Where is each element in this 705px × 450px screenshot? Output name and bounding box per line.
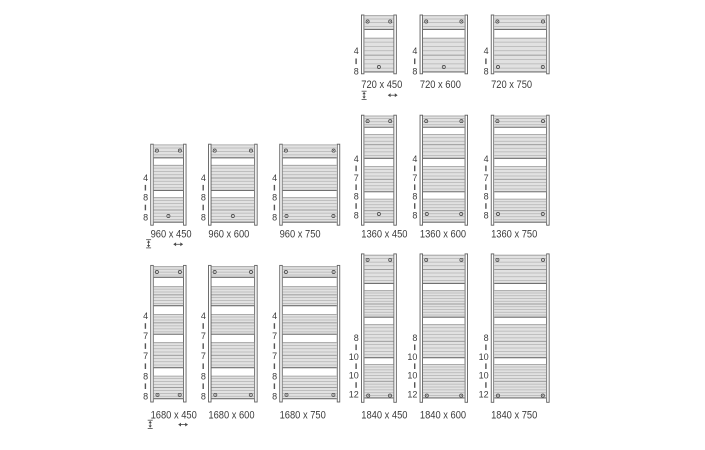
svg-text:7: 7 xyxy=(201,331,206,341)
svg-text:10: 10 xyxy=(407,352,417,362)
svg-text:720 x 600: 720 x 600 xyxy=(420,79,461,91)
svg-text:720 x 750: 720 x 750 xyxy=(491,79,532,91)
svg-text:8: 8 xyxy=(412,192,417,202)
svg-text:8: 8 xyxy=(412,333,417,343)
svg-text:4: 4 xyxy=(484,154,489,164)
svg-text:7: 7 xyxy=(484,173,489,183)
svg-text:4: 4 xyxy=(201,311,206,321)
svg-text:8: 8 xyxy=(272,391,277,401)
svg-text:8: 8 xyxy=(201,371,206,381)
svg-text:7: 7 xyxy=(354,173,359,183)
svg-text:8: 8 xyxy=(412,211,417,221)
svg-text:4: 4 xyxy=(354,46,359,56)
svg-text:8: 8 xyxy=(354,67,359,77)
svg-text:4: 4 xyxy=(354,154,359,164)
svg-text:1360 x 600: 1360 x 600 xyxy=(420,229,466,241)
svg-text:1360 x 750: 1360 x 750 xyxy=(491,229,537,241)
svg-text:12: 12 xyxy=(349,390,359,400)
svg-text:8: 8 xyxy=(143,371,148,381)
svg-text:8: 8 xyxy=(354,211,359,221)
svg-text:7: 7 xyxy=(143,351,148,361)
svg-text:4: 4 xyxy=(143,173,148,183)
svg-text:8: 8 xyxy=(143,193,148,203)
svg-text:8: 8 xyxy=(143,391,148,401)
svg-text:8: 8 xyxy=(143,213,148,223)
svg-text:8: 8 xyxy=(412,67,417,77)
svg-text:960 x 600: 960 x 600 xyxy=(208,229,249,241)
svg-text:8: 8 xyxy=(201,193,206,203)
svg-text:4: 4 xyxy=(201,173,206,183)
svg-text:8: 8 xyxy=(484,67,489,77)
svg-text:10: 10 xyxy=(349,371,359,381)
svg-text:1840 x 450: 1840 x 450 xyxy=(361,410,407,422)
svg-text:1360 x 450: 1360 x 450 xyxy=(361,229,407,241)
svg-text:1840 x 750: 1840 x 750 xyxy=(491,410,537,422)
svg-text:7: 7 xyxy=(143,331,148,341)
svg-text:8: 8 xyxy=(354,192,359,202)
svg-text:4: 4 xyxy=(272,311,277,321)
svg-text:4: 4 xyxy=(484,46,489,56)
svg-text:12: 12 xyxy=(407,390,417,400)
svg-text:4: 4 xyxy=(143,311,148,321)
svg-text:1680 x 600: 1680 x 600 xyxy=(208,410,254,422)
svg-text:960 x 750: 960 x 750 xyxy=(280,229,321,241)
svg-text:1840 x 600: 1840 x 600 xyxy=(420,410,466,422)
svg-text:12: 12 xyxy=(479,390,489,400)
svg-text:7: 7 xyxy=(412,173,417,183)
svg-text:8: 8 xyxy=(484,192,489,202)
svg-text:4: 4 xyxy=(412,46,417,56)
svg-text:4: 4 xyxy=(412,154,417,164)
svg-text:8: 8 xyxy=(201,391,206,401)
svg-text:10: 10 xyxy=(407,371,417,381)
svg-text:8: 8 xyxy=(272,371,277,381)
svg-text:8: 8 xyxy=(484,333,489,343)
svg-text:10: 10 xyxy=(349,352,359,362)
svg-text:4: 4 xyxy=(272,173,277,183)
svg-text:8: 8 xyxy=(272,193,277,203)
svg-text:10: 10 xyxy=(479,371,489,381)
svg-text:7: 7 xyxy=(272,331,277,341)
svg-text:10: 10 xyxy=(479,352,489,362)
svg-text:1680 x 450: 1680 x 450 xyxy=(151,410,197,422)
svg-text:8: 8 xyxy=(354,333,359,343)
svg-text:7: 7 xyxy=(272,351,277,361)
svg-text:8: 8 xyxy=(272,213,277,223)
svg-text:8: 8 xyxy=(484,211,489,221)
svg-text:8: 8 xyxy=(201,213,206,223)
svg-text:960 x 450: 960 x 450 xyxy=(151,229,192,241)
svg-text:7: 7 xyxy=(201,351,206,361)
svg-text:1680 x 750: 1680 x 750 xyxy=(280,410,326,422)
svg-text:720 x 450: 720 x 450 xyxy=(361,79,402,91)
